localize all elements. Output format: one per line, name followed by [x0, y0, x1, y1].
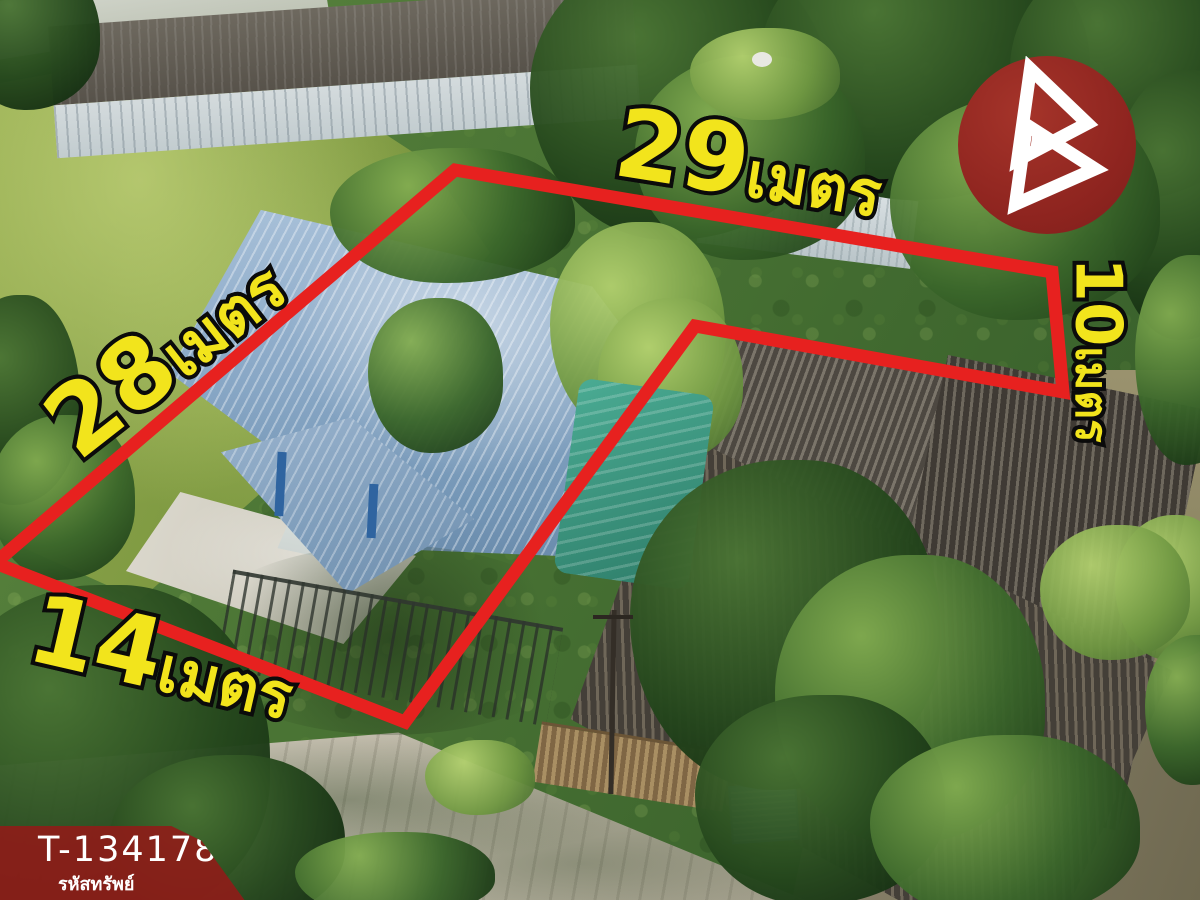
dimension-value: 10: [1060, 257, 1134, 346]
brand-logo: [958, 56, 1136, 234]
property-code-label: รหัสทรัพย์: [58, 869, 252, 898]
aerial-property-photo: 29เมตร 28เมตร 14เมตร 10เมตร T-134178 รหั…: [0, 0, 1200, 900]
dimension-label-right: 10เมตร: [1067, 257, 1128, 447]
dimension-value: 29: [608, 87, 757, 219]
brand-logo-icon: [958, 56, 1136, 234]
dimension-unit: เมตร: [1065, 346, 1116, 442]
